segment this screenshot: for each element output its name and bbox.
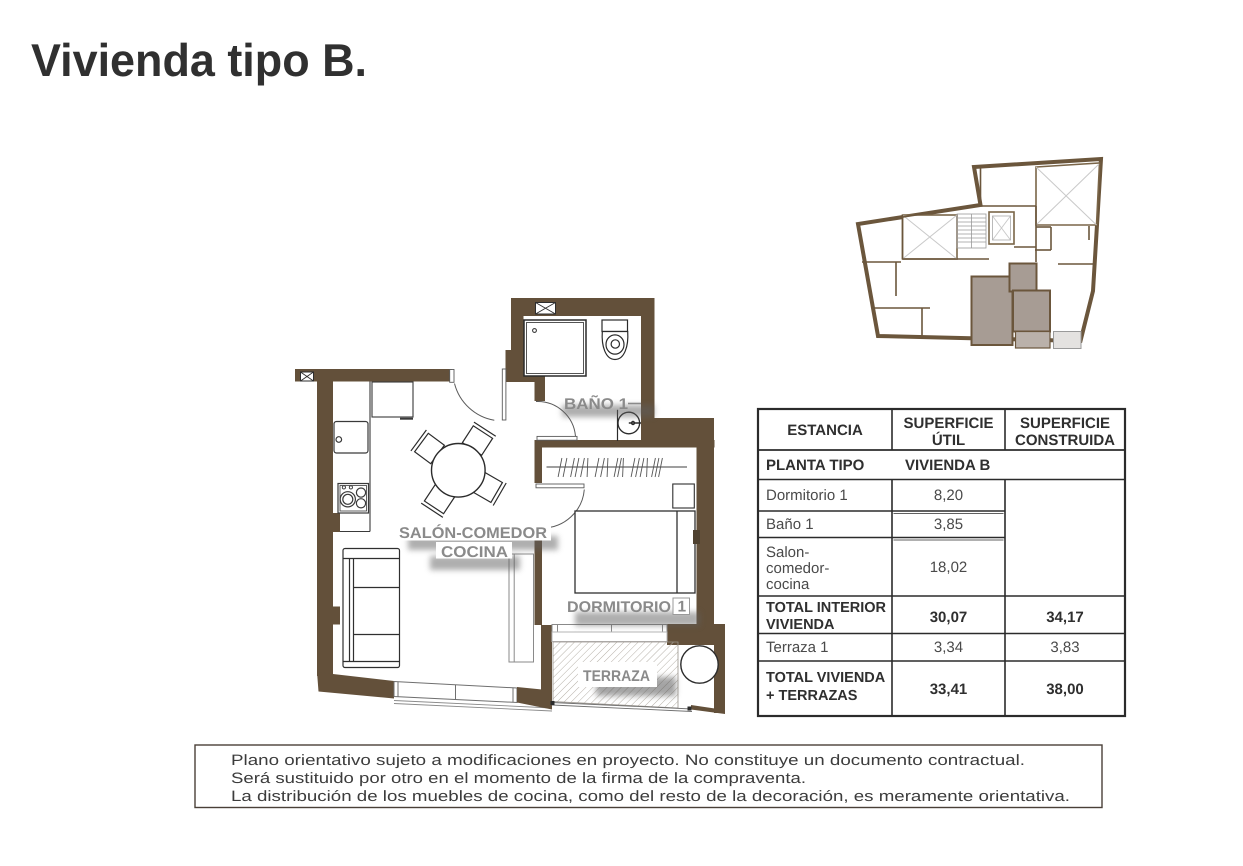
svg-text:CONSTRUIDA: CONSTRUIDA: [1015, 432, 1115, 449]
svg-text:+ TERRAZAS: + TERRAZAS: [766, 688, 858, 704]
svg-text:SUPERFICIE: SUPERFICIE: [903, 415, 993, 432]
svg-text:TOTAL VIVIENDA: TOTAL VIVIENDA: [766, 670, 886, 686]
svg-text:COCINA: COCINA: [441, 544, 508, 561]
svg-text:8,20: 8,20: [934, 487, 963, 504]
svg-text:ESTANCIA: ESTANCIA: [787, 422, 863, 439]
svg-text:SALÓN-COMEDOR: SALÓN-COMEDOR: [399, 524, 547, 542]
svg-text:cocina: cocina: [766, 576, 810, 593]
svg-text:30,07: 30,07: [930, 609, 968, 626]
svg-text:ÚTIL: ÚTIL: [932, 431, 965, 449]
svg-text:38,00: 38,00: [1046, 681, 1084, 698]
svg-text:Vivienda tipo B.: Vivienda tipo B.: [31, 34, 367, 86]
svg-text:34,17: 34,17: [1046, 609, 1084, 626]
svg-text:DORMITORIO: DORMITORIO: [567, 599, 671, 616]
svg-text:33,41: 33,41: [930, 681, 968, 698]
svg-text:Salon-: Salon-: [766, 544, 809, 561]
svg-text:SUPERFICIE: SUPERFICIE: [1020, 415, 1110, 432]
svg-text:Baño 1: Baño 1: [766, 516, 814, 533]
svg-text:BAÑO 1: BAÑO 1: [564, 395, 628, 413]
svg-text:3,83: 3,83: [1050, 639, 1079, 656]
svg-text:Plano orientativo sujeto a mod: Plano orientativo sujeto a modificacione…: [231, 752, 1025, 769]
svg-text:1: 1: [678, 599, 687, 616]
svg-text:TERRAZA: TERRAZA: [583, 668, 650, 685]
svg-text:TOTAL INTERIOR: TOTAL INTERIOR: [766, 600, 887, 616]
svg-text:3,85: 3,85: [934, 516, 963, 533]
svg-text:18,02: 18,02: [930, 559, 968, 576]
svg-text:comedor-: comedor-: [766, 560, 829, 577]
svg-text:Será sustituido por otro en el: Será sustituido por otro en el momento d…: [231, 770, 806, 787]
svg-text:3,34: 3,34: [934, 639, 963, 656]
svg-text:VIVIENDA B: VIVIENDA B: [905, 457, 990, 474]
svg-text:PLANTA TIPO: PLANTA TIPO: [766, 457, 865, 474]
svg-text:Dormitorio 1: Dormitorio 1: [766, 487, 848, 504]
svg-text:Terraza 1: Terraza 1: [766, 639, 829, 656]
svg-text:La distribución de los muebles: La distribución de los muebles de cocina…: [231, 788, 1070, 805]
svg-text:VIVIENDA: VIVIENDA: [766, 617, 835, 633]
